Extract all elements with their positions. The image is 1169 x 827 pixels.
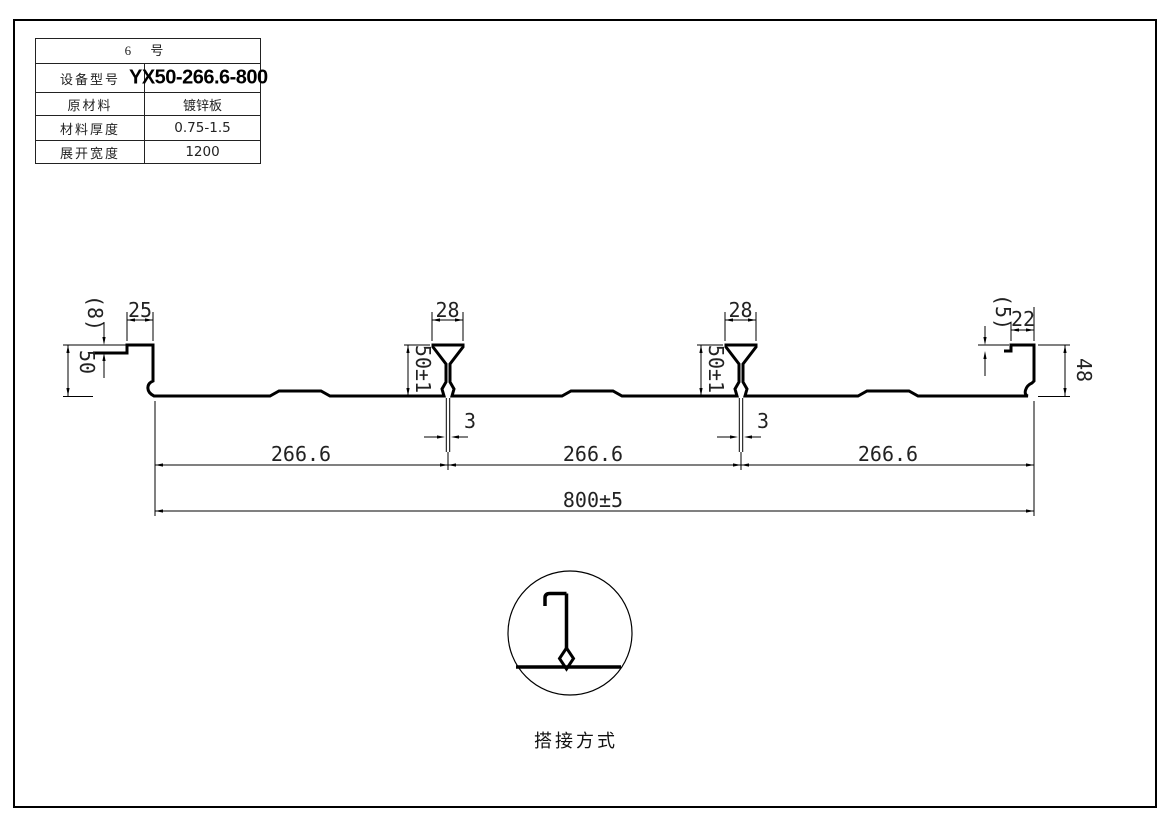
lap-joint-detail: 搭接方式 (508, 571, 632, 751)
dim-right-lip: (5) (978, 294, 1015, 376)
detail-hook (545, 594, 567, 651)
detail-circle (508, 571, 632, 695)
drawing-sheet: 6 号 设备型号 YX50-266.6-800 原材料 镀锌板 材料厚度 0.7… (0, 0, 1169, 827)
spec-value-model: YX50-266.6-800 (129, 67, 268, 90)
dim-span1-text: 266.6 (271, 442, 331, 466)
dim-rib1-top: 28 (432, 298, 463, 341)
dim-right-height-text: 48 (1072, 358, 1096, 382)
dim-left-flange: 25 (127, 298, 153, 341)
dim-rib2-stem: 3 (717, 398, 769, 470)
dim-rib2-stem-text: 3 (757, 409, 769, 433)
dim-left-lip-text: (8) (83, 295, 107, 331)
dim-left-flange-text: 25 (128, 298, 152, 322)
dim-rib2-height-text: 50±1 (704, 345, 728, 393)
dim-right-flange: 22 (1011, 307, 1035, 341)
detail-label: 搭接方式 (534, 731, 618, 751)
dim-rib2-top-text: 28 (728, 298, 752, 322)
dim-rib2-height: 50±1 (697, 345, 728, 396)
dim-right-flange-text: 22 (1011, 307, 1035, 331)
dim-overall: 800±5 (155, 488, 1034, 513)
dim-span2-text: 266.6 (563, 442, 623, 466)
dim-rib1-stem-text: 3 (464, 409, 476, 433)
dim-rib1-top-text: 28 (435, 298, 459, 322)
profile-outline (93, 345, 1034, 396)
profile-drawing: 50 (8) 25 28 (0, 0, 1169, 827)
dim-rib2-top: 28 (725, 298, 756, 341)
dim-left-height-text: 50 (75, 350, 99, 374)
dim-rib1-height-text: 50±1 (411, 345, 435, 393)
dim-rib1-stem: 3 (424, 398, 476, 470)
dim-overall-text: 800±5 (563, 488, 623, 512)
dim-span3-text: 266.6 (858, 442, 918, 466)
dim-right-height: 48 (1038, 345, 1096, 397)
dim-rib1-height: 50±1 (404, 345, 435, 396)
